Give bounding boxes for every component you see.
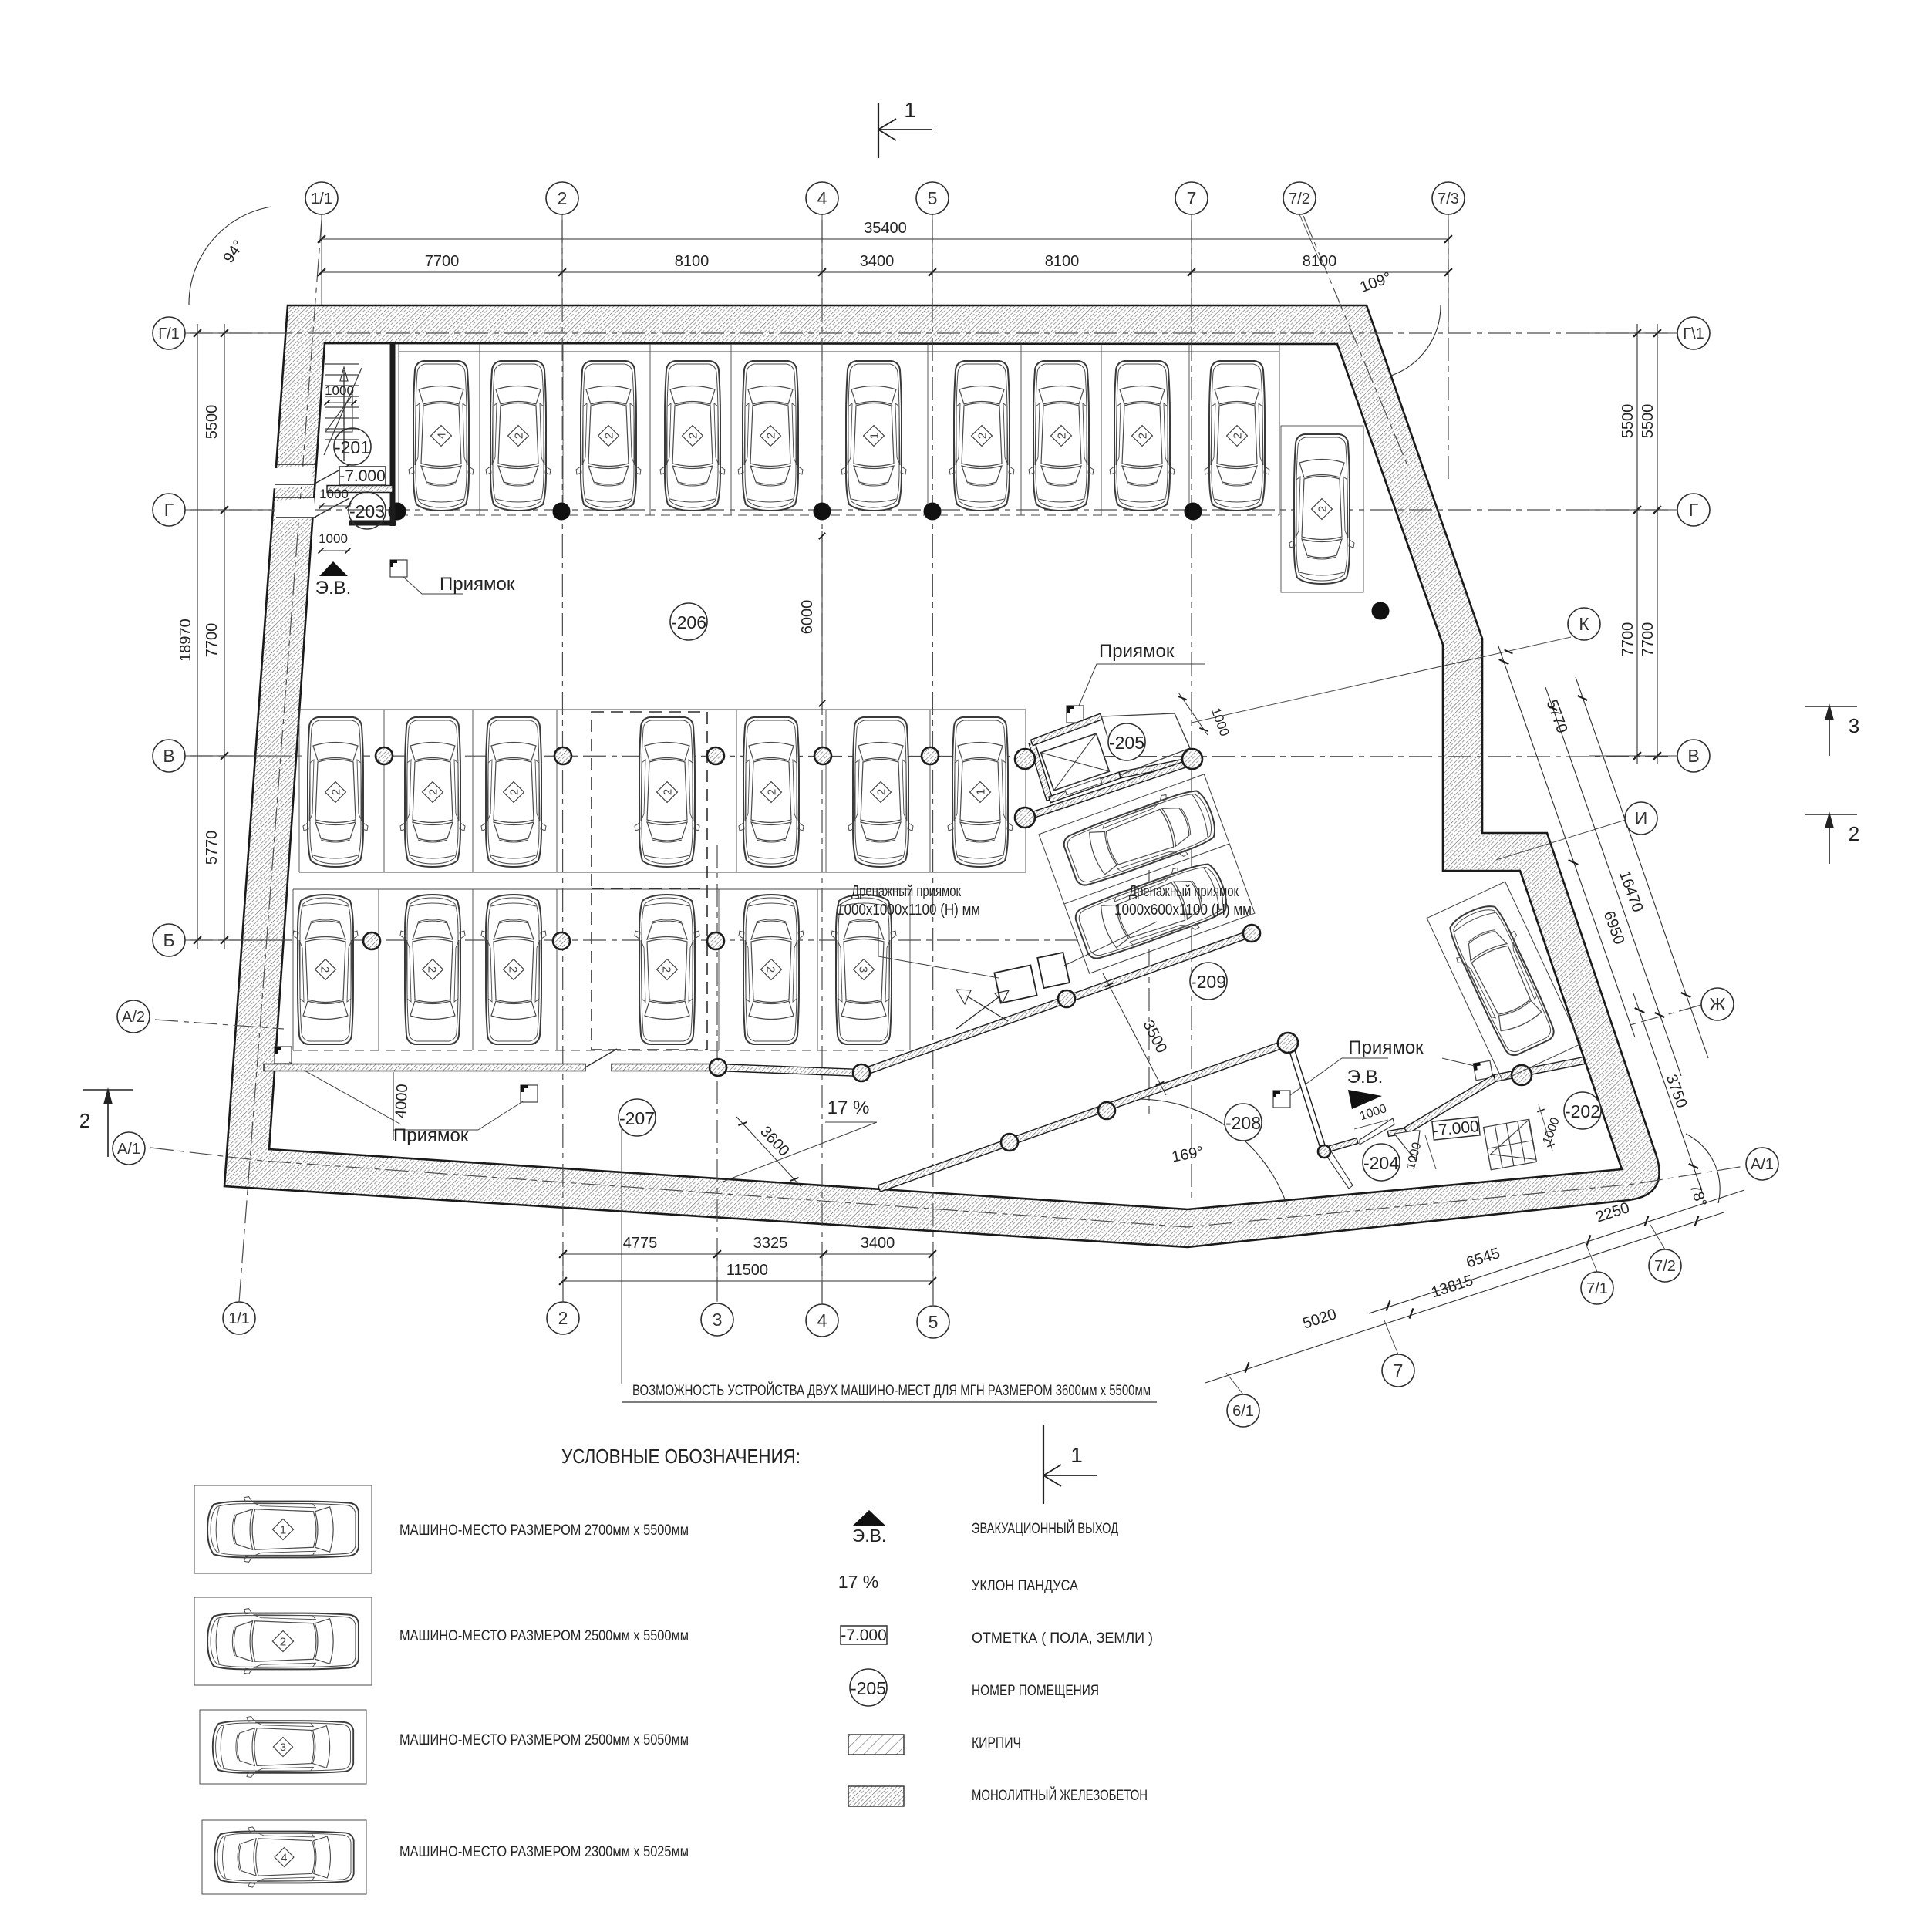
svg-text:МОНОЛИТНЫЙ ЖЕЛЕЗОБЕТОН: МОНОЛИТНЫЙ ЖЕЛЕЗОБЕТОН	[972, 1787, 1148, 1804]
svg-text:УСЛОВНЫЕ ОБОЗНАЧЕНИЯ:: УСЛОВНЫЕ ОБОЗНАЧЕНИЯ:	[561, 1445, 801, 1468]
svg-text:11500: 11500	[726, 1262, 768, 1279]
svg-text:МАШИНО-МЕСТО РАЗМЕРОМ 2300мм: МАШИНО-МЕСТО РАЗМЕРОМ 2300мм х 5025мм	[399, 1844, 689, 1860]
svg-text:5770: 5770	[204, 831, 221, 865]
svg-text:2: 2	[1232, 433, 1245, 439]
svg-text:Дренажный приямок: Дренажный приямок	[851, 883, 961, 900]
svg-text:2: 2	[766, 789, 779, 795]
svg-text:-204: -204	[1363, 1153, 1399, 1173]
svg-text:Г/1: Г/1	[158, 325, 180, 342]
svg-text:А/1: А/1	[117, 1141, 140, 1158]
svg-text:Б: Б	[163, 930, 174, 950]
svg-text:2: 2	[79, 1109, 90, 1132]
svg-text:7: 7	[1187, 188, 1197, 208]
svg-text:2: 2	[280, 1636, 286, 1649]
svg-text:1: 1	[975, 789, 988, 795]
svg-text:Дренажный приямок: Дренажный приямок	[1129, 883, 1239, 900]
svg-text:3400: 3400	[860, 253, 895, 270]
svg-text:-205: -205	[1109, 733, 1144, 753]
svg-text:2: 2	[976, 433, 989, 439]
svg-text:5: 5	[929, 1312, 939, 1332]
svg-text:Э.В.: Э.В.	[1347, 1067, 1384, 1087]
svg-text:1/1: 1/1	[228, 1310, 250, 1327]
svg-text:-207: -207	[619, 1108, 655, 1128]
svg-text:-201: -201	[335, 437, 370, 457]
svg-text:2: 2	[687, 433, 700, 439]
svg-text:4: 4	[817, 1310, 827, 1330]
svg-text:2: 2	[1056, 433, 1069, 439]
svg-text:2: 2	[330, 789, 343, 795]
svg-text:1: 1	[904, 98, 916, 122]
svg-text:-7.000: -7.000	[841, 1627, 887, 1644]
svg-text:3: 3	[713, 1310, 723, 1330]
svg-text:2: 2	[558, 188, 568, 208]
svg-text:2: 2	[765, 433, 778, 439]
svg-text:-202: -202	[1565, 1101, 1600, 1121]
svg-text:2: 2	[1316, 506, 1330, 512]
svg-text:-7.000: -7.000	[339, 467, 386, 485]
svg-text:4: 4	[436, 433, 449, 439]
svg-text:7700: 7700	[425, 253, 460, 270]
svg-text:1/1: 1/1	[311, 191, 332, 207]
svg-text:8100: 8100	[675, 253, 710, 270]
svg-text:И: И	[1635, 808, 1648, 828]
svg-text:7/1: 7/1	[1586, 1280, 1608, 1297]
svg-text:3: 3	[280, 1741, 286, 1753]
svg-text:2: 2	[319, 966, 332, 973]
svg-text:А/2: А/2	[122, 1009, 145, 1026]
svg-text:2: 2	[603, 433, 616, 439]
svg-text:1: 1	[868, 433, 881, 439]
svg-text:МАШИНО-МЕСТО РАЗМЕРОМ 2700мм: МАШИНО-МЕСТО РАЗМЕРОМ 2700мм х 5500мм	[399, 1522, 689, 1539]
svg-text:6/1: 6/1	[1232, 1403, 1254, 1420]
svg-text:ВОЗМОЖНОСТЬ УСТРОЙСТВА ДВУХ МА: ВОЗМОЖНОСТЬ УСТРОЙСТВА ДВУХ МАШИНО-МЕСТ …	[632, 1382, 1151, 1399]
svg-text:2: 2	[1849, 822, 1859, 845]
svg-text:Э.В.: Э.В.	[315, 578, 352, 598]
svg-text:2: 2	[426, 966, 439, 973]
svg-text:В: В	[163, 746, 174, 766]
svg-text:-205: -205	[851, 1678, 886, 1698]
svg-text:1: 1	[1070, 1443, 1083, 1467]
svg-text:3: 3	[1849, 714, 1859, 737]
svg-text:В: В	[1687, 746, 1699, 766]
svg-text:8100: 8100	[1303, 253, 1337, 270]
svg-text:УКЛОН ПАНДУСА: УКЛОН ПАНДУСА	[972, 1578, 1078, 1594]
svg-text:1000: 1000	[325, 383, 354, 398]
svg-text:А/1: А/1	[1751, 1156, 1774, 1173]
svg-text:7700: 7700	[1620, 622, 1636, 657]
svg-text:1000: 1000	[319, 531, 348, 546]
svg-text:3325: 3325	[753, 1235, 788, 1252]
svg-text:-208: -208	[1225, 1113, 1261, 1133]
svg-text:1: 1	[280, 1524, 286, 1537]
svg-text:5500: 5500	[1620, 404, 1636, 439]
svg-text:1000х1000х1100 (Н) мм: 1000х1000х1100 (Н) мм	[837, 902, 980, 919]
svg-text:Приямок: Приямок	[1099, 641, 1175, 662]
svg-text:4000: 4000	[393, 1084, 411, 1119]
svg-text:1000х600х1100 (Н) мм: 1000х600х1100 (Н) мм	[1114, 902, 1252, 919]
svg-text:Г: Г	[1689, 500, 1699, 520]
svg-text:5500: 5500	[204, 405, 221, 440]
svg-text:ОТМЕТКА ( ПОЛА, ЗЕМЛИ ): ОТМЕТКА ( ПОЛА, ЗЕМЛИ )	[972, 1630, 1153, 1647]
svg-text:17 %: 17 %	[827, 1097, 870, 1118]
svg-text:7700: 7700	[204, 623, 221, 658]
svg-text:КИРПИЧ: КИРПИЧ	[972, 1735, 1021, 1752]
svg-text:7/2: 7/2	[1654, 1258, 1676, 1275]
svg-text:МАШИНО-МЕСТО РАЗМЕРОМ 2500мм: МАШИНО-МЕСТО РАЗМЕРОМ 2500мм х 5500мм	[399, 1628, 689, 1644]
svg-text:7700: 7700	[1640, 622, 1657, 657]
svg-text:18970: 18970	[177, 619, 194, 662]
svg-text:ЭВАКУАЦИОННЫЙ ВЫХОД: ЭВАКУАЦИОННЫЙ ВЫХОД	[972, 1520, 1118, 1537]
svg-text:17 %: 17 %	[838, 1572, 878, 1592]
svg-text:НОМЕР ПОМЕЩЕНИЯ: НОМЕР ПОМЕЩЕНИЯ	[972, 1683, 1099, 1699]
svg-text:2: 2	[427, 789, 440, 795]
svg-text:Г\1: Г\1	[1683, 325, 1704, 342]
svg-text:2: 2	[507, 966, 520, 973]
svg-text:5500: 5500	[1640, 404, 1657, 439]
svg-text:К: К	[1579, 614, 1589, 634]
svg-text:8100: 8100	[1045, 253, 1080, 270]
svg-text:4: 4	[281, 1851, 288, 1863]
svg-text:Приямок: Приямок	[1348, 1037, 1424, 1058]
svg-text:Г: Г	[164, 500, 174, 520]
svg-text:2: 2	[875, 789, 888, 795]
svg-text:7/3: 7/3	[1438, 191, 1459, 207]
svg-text:2: 2	[764, 966, 777, 973]
svg-text:7: 7	[1394, 1360, 1404, 1381]
svg-text:4775: 4775	[623, 1235, 658, 1252]
svg-text:-203: -203	[349, 501, 385, 521]
svg-text:3400: 3400	[861, 1235, 895, 1252]
svg-text:2: 2	[662, 789, 675, 795]
svg-text:Приямок: Приямок	[440, 574, 515, 595]
svg-text:2: 2	[1137, 433, 1150, 439]
svg-text:Э.В.: Э.В.	[852, 1526, 887, 1546]
svg-text:-209: -209	[1191, 972, 1226, 992]
svg-text:6000: 6000	[799, 600, 816, 635]
svg-text:5: 5	[928, 188, 938, 208]
svg-text:-206: -206	[671, 612, 706, 632]
svg-text:МАШИНО-МЕСТО РАЗМЕРОМ 2500мм: МАШИНО-МЕСТО РАЗМЕРОМ 2500мм х 5050мм	[399, 1732, 689, 1748]
svg-text:3: 3	[857, 966, 870, 973]
svg-text:2: 2	[513, 433, 526, 439]
svg-text:1000: 1000	[319, 487, 349, 501]
svg-text:Ж: Ж	[1709, 994, 1725, 1014]
svg-text:4: 4	[817, 188, 827, 208]
svg-text:Приямок: Приямок	[393, 1125, 469, 1146]
svg-text:2: 2	[660, 966, 673, 973]
svg-text:7/2: 7/2	[1289, 191, 1310, 207]
svg-text:2: 2	[558, 1308, 568, 1328]
svg-text:35400: 35400	[864, 220, 907, 237]
svg-text:2: 2	[508, 789, 521, 795]
